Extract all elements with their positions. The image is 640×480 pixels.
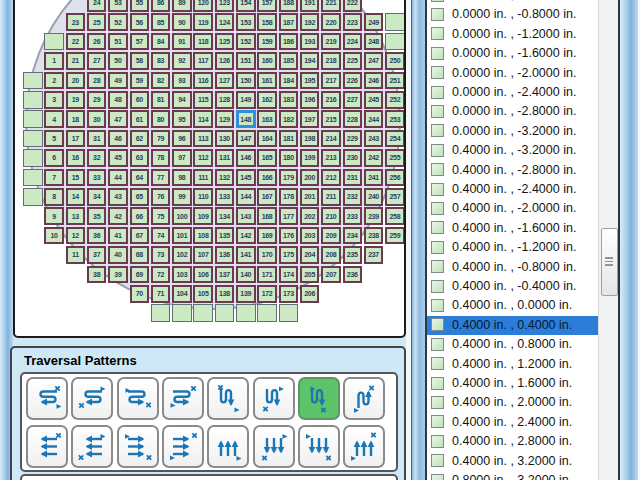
wafer-edge-die[interactable] — [23, 149, 43, 167]
wafer-die[interactable]: 197 — [300, 110, 320, 128]
coordinate-checkbox[interactable] — [431, 280, 444, 293]
wafer-die[interactable]: 228 — [343, 110, 363, 128]
wafer-die[interactable]: 224 — [343, 33, 363, 51]
wafer-die[interactable]: 109 — [193, 207, 213, 225]
wafer-die[interactable]: 256 — [385, 169, 405, 187]
wafer-die-selected[interactable]: 148 — [236, 110, 256, 128]
wafer-die[interactable]: 39 — [108, 266, 128, 284]
wafer-edge-die[interactable] — [44, 33, 64, 51]
wafer-die[interactable]: 127 — [215, 72, 235, 90]
coordinate-row[interactable]: 0.4000 in. , 2.0000 in. — [427, 393, 598, 412]
wafer-die[interactable]: 60 — [130, 91, 150, 109]
wafer-die[interactable]: 204 — [300, 246, 320, 264]
wafer-die[interactable]: 198 — [300, 130, 320, 148]
wafer-die[interactable]: 238 — [364, 227, 384, 245]
wafer-die[interactable]: 63 — [130, 149, 150, 167]
wafer-die[interactable]: 215 — [321, 110, 341, 128]
coordinate-checkbox[interactable] — [431, 202, 444, 215]
wafer-die[interactable]: 141 — [236, 246, 256, 264]
wafer-die[interactable]: 118 — [193, 33, 213, 51]
wafer-edge-die[interactable] — [193, 304, 213, 322]
coordinate-row[interactable]: 0.4000 in. , 2.8000 in. — [427, 432, 598, 451]
wafer-die[interactable]: 92 — [172, 52, 192, 70]
wafer-die[interactable]: 138 — [215, 285, 235, 303]
wafer-die[interactable]: 40 — [108, 246, 128, 264]
wafer-die[interactable]: 16 — [66, 149, 86, 167]
wafer-die[interactable]: 211 — [321, 188, 341, 206]
wafer-die[interactable]: 120 — [193, 0, 213, 12]
pattern-button-raster-south-a[interactable] — [253, 425, 295, 468]
coordinate-checkbox[interactable] — [431, 8, 444, 21]
wafer-die[interactable]: 123 — [215, 0, 235, 12]
wafer-die[interactable]: 24 — [87, 0, 107, 12]
wafer-die[interactable]: 26 — [87, 33, 107, 51]
wafer-die[interactable]: 30 — [87, 110, 107, 128]
wafer-die[interactable]: 188 — [279, 0, 299, 12]
wafer-die[interactable]: 212 — [321, 169, 341, 187]
wafer-die[interactable]: 14 — [66, 188, 86, 206]
wafer-die[interactable]: 68 — [130, 246, 150, 264]
wafer-edge-die[interactable] — [23, 169, 43, 187]
wafer-die[interactable]: 160 — [257, 52, 277, 70]
wafer-die[interactable]: 243 — [364, 130, 384, 148]
wafer-die[interactable]: 178 — [279, 188, 299, 206]
wafer-die[interactable]: 151 — [236, 52, 256, 70]
wafer-die[interactable]: 59 — [130, 72, 150, 90]
wafer-die[interactable]: 229 — [343, 130, 363, 148]
wafer-die[interactable]: 167 — [257, 188, 277, 206]
wafer-die[interactable]: 244 — [364, 110, 384, 128]
wafer-edge-die[interactable] — [23, 72, 43, 90]
wafer-die[interactable]: 48 — [108, 91, 128, 109]
wafer-die[interactable]: 76 — [151, 188, 171, 206]
wafer-die[interactable]: 89 — [172, 0, 192, 12]
wafer-die[interactable]: 131 — [215, 149, 235, 167]
wafer-die[interactable]: 181 — [279, 130, 299, 148]
wafer-die[interactable]: 258 — [385, 207, 405, 225]
wafer-die[interactable]: 62 — [130, 130, 150, 148]
wafer-die[interactable]: 245 — [364, 91, 384, 109]
wafer-die[interactable]: 119 — [193, 13, 213, 31]
wafer-die[interactable]: 105 — [193, 285, 213, 303]
wafer-die[interactable]: 4 — [44, 110, 64, 128]
wafer-die[interactable]: 226 — [343, 72, 363, 90]
wafer-die[interactable]: 259 — [385, 227, 405, 245]
wafer-die[interactable]: 154 — [236, 0, 256, 12]
wafer-die[interactable]: 110 — [193, 188, 213, 206]
pattern-button-serpentine-north-a[interactable] — [343, 377, 385, 420]
wafer-die[interactable]: 18 — [66, 110, 86, 128]
wafer-die[interactable]: 170 — [257, 246, 277, 264]
wafer-die[interactable]: 254 — [385, 130, 405, 148]
wafer-edge-die[interactable] — [236, 304, 256, 322]
wafer-die[interactable]: 35 — [87, 207, 107, 225]
wafer-die[interactable]: 251 — [385, 72, 405, 90]
wafer-die[interactable]: 255 — [385, 149, 405, 167]
wafer-die[interactable]: 166 — [257, 169, 277, 187]
wafer-die[interactable]: 129 — [215, 110, 235, 128]
coordinate-checkbox[interactable] — [431, 357, 444, 370]
wafer-die[interactable]: 185 — [279, 52, 299, 70]
coordinate-checkbox[interactable] — [431, 221, 444, 234]
wafer-die[interactable]: 239 — [364, 207, 384, 225]
wafer-die[interactable]: 41 — [108, 227, 128, 245]
wafer-die[interactable]: 55 — [130, 0, 150, 12]
wafer-die[interactable]: 200 — [300, 169, 320, 187]
wafer-die[interactable]: 242 — [364, 149, 384, 167]
coordinate-row[interactable]: 0.4000 in. , -1.6000 in. — [427, 219, 598, 238]
wafer-die[interactable]: 66 — [130, 207, 150, 225]
wafer-die[interactable]: 137 — [215, 266, 235, 284]
wafer-die[interactable]: 80 — [151, 110, 171, 128]
wafer-edge-die[interactable] — [215, 304, 235, 322]
wafer-die[interactable]: 134 — [215, 207, 235, 225]
coordinate-row[interactable]: 0.8000 in. , 3.2000 in. — [427, 471, 598, 480]
wafer-die[interactable]: 3 — [44, 91, 64, 109]
wafer-die[interactable]: 49 — [108, 72, 128, 90]
wafer-die[interactable]: 1 — [44, 52, 64, 70]
coordinate-row[interactable]: 0.0000 in. , -2.4000 in. — [427, 83, 598, 102]
wafer-edge-die[interactable] — [257, 304, 277, 322]
wafer-die[interactable]: 230 — [343, 149, 363, 167]
pattern-button-serpentine-east-b[interactable] — [162, 377, 204, 420]
wafer-die[interactable]: 10 — [44, 227, 64, 245]
wafer-die[interactable]: 132 — [215, 169, 235, 187]
wafer-die[interactable]: 31 — [87, 130, 107, 148]
wafer-die[interactable]: 27 — [87, 52, 107, 70]
wafer-die[interactable]: 128 — [215, 91, 235, 109]
wafer-die[interactable]: 234 — [343, 227, 363, 245]
wafer-die[interactable]: 219 — [321, 33, 341, 51]
wafer-die[interactable]: 213 — [321, 149, 341, 167]
wafer-die[interactable]: 73 — [151, 246, 171, 264]
wafer-die[interactable]: 113 — [193, 130, 213, 148]
wafer-die[interactable]: 180 — [279, 149, 299, 167]
pattern-button-raster-east-a[interactable] — [117, 425, 159, 468]
wafer-die[interactable]: 53 — [108, 0, 128, 12]
wafer-edge-die[interactable] — [23, 188, 43, 206]
wafer-die[interactable]: 174 — [279, 266, 299, 284]
wafer-edge-die[interactable] — [172, 304, 192, 322]
wafer-die[interactable]: 79 — [151, 130, 171, 148]
wafer-die[interactable]: 116 — [193, 72, 213, 90]
wafer-die[interactable]: 114 — [193, 110, 213, 128]
coordinate-checkbox[interactable] — [431, 86, 444, 99]
wafer-die[interactable]: 36 — [87, 227, 107, 245]
wafer-die[interactable]: 227 — [343, 91, 363, 109]
pattern-button-serpentine-south-b[interactable] — [253, 377, 295, 420]
wafer-die[interactable]: 52 — [108, 13, 128, 31]
wafer-die[interactable]: 171 — [257, 266, 277, 284]
coordinate-checkbox[interactable] — [431, 454, 444, 467]
wafer-die[interactable]: 165 — [257, 149, 277, 167]
coordinate-checkbox[interactable] — [431, 105, 444, 118]
wafer-die[interactable]: 157 — [257, 0, 277, 12]
wafer-die[interactable]: 173 — [279, 285, 299, 303]
wafer-edge-die[interactable] — [385, 33, 405, 51]
wafer-die[interactable]: 216 — [321, 91, 341, 109]
coordinate-row[interactable]: 0.4000 in. , 3.2000 in. — [427, 452, 598, 471]
wafer-die[interactable]: 77 — [151, 169, 171, 187]
coordinate-checkbox[interactable] — [431, 144, 444, 157]
wafer-edge-die[interactable] — [385, 13, 405, 31]
wafer-die[interactable]: 125 — [215, 33, 235, 51]
wafer-die[interactable]: 13 — [66, 207, 86, 225]
wafer-die[interactable]: 50 — [108, 52, 128, 70]
pattern-button-raster-north-b[interactable] — [343, 425, 385, 468]
wafer-die[interactable]: 150 — [236, 72, 256, 90]
wafer-die[interactable]: 2 — [44, 72, 64, 90]
wafer-die[interactable]: 45 — [108, 149, 128, 167]
wafer-die[interactable]: 65 — [130, 188, 150, 206]
coordinate-checkbox[interactable] — [431, 47, 444, 60]
wafer-die[interactable]: 70 — [130, 285, 150, 303]
wafer-edge-die[interactable] — [151, 304, 171, 322]
coordinate-row[interactable]: 0.4000 in. , 0.8000 in. — [427, 335, 598, 354]
wafer-die[interactable]: 201 — [300, 188, 320, 206]
wafer-die[interactable]: 149 — [236, 91, 256, 109]
coordinate-row[interactable]: 0.4000 in. , -2.0000 in. — [427, 199, 598, 218]
coordinate-checkbox[interactable] — [431, 299, 444, 312]
coordinate-row[interactable]: 0.0000 in. , -2.8000 in. — [427, 102, 598, 121]
wafer-die[interactable]: 103 — [172, 266, 192, 284]
wafer-die[interactable]: 78 — [151, 149, 171, 167]
wafer-die[interactable]: 42 — [108, 207, 128, 225]
wafer-die[interactable]: 34 — [87, 188, 107, 206]
wafer-die[interactable]: 191 — [300, 0, 320, 12]
wafer-die[interactable]: 249 — [364, 13, 384, 31]
wafer-die[interactable]: 169 — [257, 227, 277, 245]
wafer-die[interactable]: 153 — [236, 13, 256, 31]
coordinate-row[interactable]: 0.0000 in. , -0.8000 in. — [427, 5, 598, 24]
wafer-die[interactable]: 102 — [172, 246, 192, 264]
wafer-die[interactable]: 176 — [279, 227, 299, 245]
wafer-die[interactable]: 101 — [172, 227, 192, 245]
wafer-die[interactable]: 9 — [44, 207, 64, 225]
pattern-button-raster-north-a[interactable] — [207, 425, 249, 468]
wafer-die[interactable]: 74 — [151, 227, 171, 245]
wafer-die[interactable]: 246 — [364, 72, 384, 90]
wafer-die[interactable]: 250 — [385, 52, 405, 70]
wafer-die[interactable]: 115 — [193, 91, 213, 109]
wafer-die[interactable]: 236 — [343, 266, 363, 284]
wafer-die[interactable]: 72 — [151, 266, 171, 284]
wafer-die[interactable]: 104 — [172, 285, 192, 303]
wafer-die[interactable]: 82 — [151, 72, 171, 90]
wafer-die[interactable]: 140 — [236, 266, 256, 284]
wafer-die[interactable]: 207 — [321, 266, 341, 284]
wafer-die[interactable]: 208 — [321, 246, 341, 264]
wafer-die[interactable]: 142 — [236, 227, 256, 245]
wafer-die[interactable]: 117 — [193, 52, 213, 70]
wafer-die[interactable]: 175 — [279, 246, 299, 264]
wafer-die[interactable]: 19 — [66, 91, 86, 109]
wafer-die[interactable]: 217 — [321, 72, 341, 90]
wafer-die[interactable]: 12 — [66, 227, 86, 245]
wafer-die[interactable]: 237 — [364, 246, 384, 264]
wafer-die[interactable]: 21 — [66, 52, 86, 70]
coordinate-checkbox[interactable] — [431, 163, 444, 176]
wafer-die[interactable]: 192 — [300, 13, 320, 31]
wafer-die[interactable]: 67 — [130, 227, 150, 245]
wafer-die[interactable]: 32 — [87, 149, 107, 167]
coordinate-checkbox[interactable] — [431, 415, 444, 428]
wafer-die[interactable]: 86 — [151, 0, 171, 12]
wafer-die[interactable]: 11 — [66, 246, 86, 264]
wafer-die[interactable]: 253 — [385, 110, 405, 128]
wafer-die[interactable]: 22 — [66, 33, 86, 51]
coordinate-checkbox[interactable] — [431, 338, 444, 351]
pattern-button-serpentine-south-a[interactable] — [207, 377, 249, 420]
wafer-edge-die[interactable] — [23, 91, 43, 109]
wafer-die[interactable]: 108 — [193, 227, 213, 245]
wafer-die[interactable]: 218 — [321, 52, 341, 70]
wafer-die[interactable]: 126 — [215, 52, 235, 70]
wafer-die[interactable]: 44 — [108, 169, 128, 187]
wafer-die[interactable]: 163 — [257, 110, 277, 128]
wafer-die[interactable]: 139 — [236, 285, 256, 303]
wafer-die[interactable]: 203 — [300, 227, 320, 245]
wafer-die[interactable]: 85 — [151, 13, 171, 31]
wafer-die[interactable]: 90 — [172, 13, 192, 31]
wafer-edge-die[interactable] — [23, 110, 43, 128]
wafer-die[interactable]: 43 — [108, 188, 128, 206]
wafer-die[interactable]: 248 — [364, 33, 384, 51]
coordinate-checkbox[interactable] — [431, 183, 444, 196]
coordinate-checkbox[interactable] — [431, 27, 444, 40]
wafer-die[interactable]: 20 — [66, 72, 86, 90]
coordinate-checkbox[interactable] — [431, 474, 444, 480]
wafer-die[interactable]: 83 — [151, 52, 171, 70]
coordinate-row[interactable]: 0.0000 in. , -1.2000 in. — [427, 25, 598, 44]
wafer-die[interactable]: 177 — [279, 207, 299, 225]
coordinate-list-scrollbar[interactable] — [598, 0, 618, 480]
wafer-die[interactable]: 186 — [279, 33, 299, 51]
wafer-die[interactable]: 143 — [236, 207, 256, 225]
pattern-button-raster-south-b[interactable] — [298, 425, 340, 468]
pattern-button-raster-west-a[interactable] — [26, 425, 68, 468]
wafer-die[interactable]: 7 — [44, 169, 64, 187]
wafer-die[interactable]: 97 — [172, 149, 192, 167]
wafer-die[interactable]: 106 — [193, 266, 213, 284]
wafer-die[interactable]: 47 — [108, 110, 128, 128]
wafer-die[interactable]: 233 — [343, 207, 363, 225]
wafer-die[interactable]: 257 — [385, 188, 405, 206]
wafer-die[interactable]: 84 — [151, 33, 171, 51]
wafer-die[interactable]: 75 — [151, 207, 171, 225]
wafer-die[interactable]: 61 — [130, 110, 150, 128]
wafer-die[interactable]: 112 — [193, 149, 213, 167]
wafer-die[interactable]: 94 — [172, 91, 192, 109]
wafer-die[interactable]: 133 — [215, 188, 235, 206]
coordinate-row[interactable]: 0.0000 in. , -2.0000 in. — [427, 64, 598, 83]
wafer-die[interactable]: 147 — [236, 130, 256, 148]
pattern-button-serpentine-east-a[interactable] — [117, 377, 159, 420]
coordinate-checkbox[interactable] — [431, 377, 444, 390]
wafer-die[interactable]: 209 — [321, 227, 341, 245]
coordinate-row[interactable]: 0.4000 in. , -1.2000 in. — [427, 238, 598, 257]
wafer-die[interactable]: 202 — [300, 207, 320, 225]
wafer-die[interactable]: 135 — [215, 227, 235, 245]
wafer-die[interactable]: 100 — [172, 207, 192, 225]
coordinate-checkbox[interactable] — [431, 124, 444, 137]
wafer-die[interactable]: 158 — [257, 13, 277, 31]
wafer-die[interactable]: 159 — [257, 33, 277, 51]
wafer-die[interactable]: 182 — [279, 110, 299, 128]
coordinate-checkbox[interactable] — [431, 260, 444, 273]
wafer-die[interactable]: 81 — [151, 91, 171, 109]
wafer-die[interactable]: 58 — [130, 52, 150, 70]
wafer-die[interactable]: 179 — [279, 169, 299, 187]
wafer-die[interactable]: 196 — [300, 91, 320, 109]
wafer-die[interactable]: 205 — [300, 266, 320, 284]
pattern-button-serpentine-south-c[interactable] — [298, 377, 340, 420]
coordinate-row[interactable]: 0.4000 in. , 0.0000 in. — [427, 296, 598, 315]
wafer-die[interactable]: 71 — [151, 285, 171, 303]
wafer-die[interactable]: 64 — [130, 169, 150, 187]
coordinate-row[interactable]: 0.0000 in. , -3.2000 in. — [427, 122, 598, 141]
wafer-die[interactable]: 28 — [87, 72, 107, 90]
wafer-die[interactable]: 222 — [343, 0, 363, 12]
wafer-die[interactable]: 95 — [172, 110, 192, 128]
coordinate-checkbox[interactable] — [431, 66, 444, 79]
coordinate-checkbox[interactable] — [431, 318, 444, 331]
wafer-die[interactable]: 51 — [108, 33, 128, 51]
coordinate-row-selected[interactable]: 0.4000 in. , 0.4000 in. — [427, 316, 598, 335]
coordinate-row[interactable]: 0.4000 in. , -0.4000 in. — [427, 277, 598, 296]
wafer-die[interactable]: 111 — [193, 169, 213, 187]
coordinate-row[interactable]: 0.4000 in. , 1.2000 in. — [427, 355, 598, 374]
coordinate-checkbox[interactable] — [431, 0, 444, 2]
wafer-die[interactable]: 8 — [44, 188, 64, 206]
wafer-die[interactable]: 225 — [343, 52, 363, 70]
wafer-edge-die[interactable] — [279, 304, 299, 322]
coordinate-row[interactable]: 0.4000 in. , -2.8000 in. — [427, 161, 598, 180]
wafer-die[interactable]: 23 — [66, 13, 86, 31]
coordinate-checkbox[interactable] — [431, 435, 444, 448]
wafer-die[interactable]: 152 — [236, 33, 256, 51]
wafer-die[interactable]: 247 — [364, 52, 384, 70]
wafer-die[interactable]: 96 — [172, 130, 192, 148]
pattern-button-serpentine-west-b[interactable] — [71, 377, 113, 420]
wafer-die[interactable]: 124 — [215, 13, 235, 31]
wafer-die[interactable]: 146 — [236, 149, 256, 167]
wafer-die[interactable]: 5 — [44, 130, 64, 148]
wafer-die[interactable]: 240 — [364, 188, 384, 206]
wafer-die[interactable]: 46 — [108, 130, 128, 148]
wafer-die[interactable]: 6 — [44, 149, 64, 167]
wafer-die[interactable]: 168 — [257, 207, 277, 225]
wafer-die[interactable]: 162 — [257, 91, 277, 109]
wafer-die[interactable]: 161 — [257, 72, 277, 90]
wafer-die[interactable]: 17 — [66, 130, 86, 148]
wafer-die[interactable]: 144 — [236, 188, 256, 206]
wafer-die[interactable]: 214 — [321, 130, 341, 148]
wafer-die[interactable]: 223 — [343, 13, 363, 31]
wafer-edge-die[interactable] — [23, 130, 43, 148]
wafer-die[interactable]: 25 — [87, 13, 107, 31]
wafer-die[interactable]: 195 — [300, 72, 320, 90]
coordinate-checkbox[interactable] — [431, 396, 444, 409]
wafer-die[interactable]: 130 — [215, 130, 235, 148]
coordinate-row[interactable]: 0.4000 in. , 2.4000 in. — [427, 413, 598, 432]
wafer-die[interactable]: 193 — [300, 33, 320, 51]
wafer-die[interactable]: 57 — [130, 33, 150, 51]
wafer-die[interactable]: 194 — [300, 52, 320, 70]
coordinate-row[interactable]: 0.0000 in. , -1.6000 in. — [427, 44, 598, 63]
pattern-button-raster-west-b[interactable] — [71, 425, 113, 468]
wafer-die[interactable]: 231 — [343, 169, 363, 187]
